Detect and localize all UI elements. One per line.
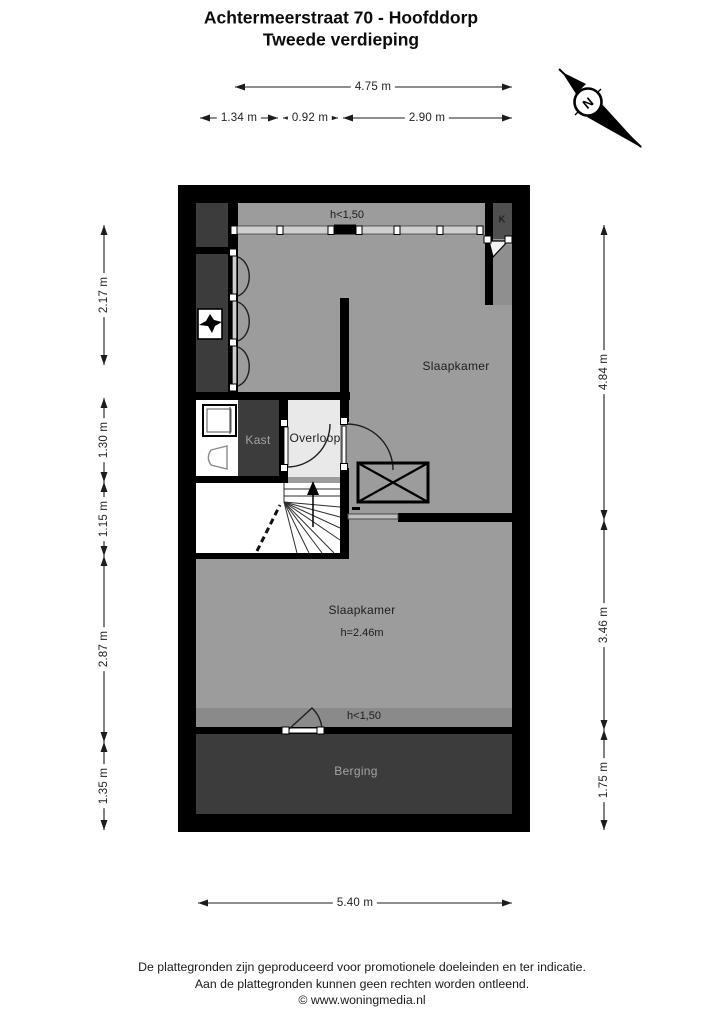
dim-right-2: 3.46 m	[598, 603, 610, 647]
dim-right-1: 4.84 m	[598, 350, 610, 394]
height-note-bottom: h<1,50	[347, 710, 381, 722]
mv-unit-icon	[198, 309, 222, 339]
dim-left-2: 1.30 m	[98, 418, 110, 462]
dim-left-4: 2.87 m	[98, 627, 110, 671]
floorplan-page: N Achtermeerstraat 70 - Hoofddorp Tweede…	[0, 0, 724, 1024]
dim-top-seg-2: 0.92 m	[288, 112, 332, 124]
window-band-top	[231, 225, 483, 235]
dim-left-1: 2.17 m	[98, 273, 110, 317]
footer-disclaimer-2: Aan de plattegronden kunnen geen rechten…	[195, 977, 529, 991]
height-note-top: h<1,50	[330, 209, 364, 221]
room-label-slaapkamer-bottom: Slaapkamer	[328, 603, 395, 617]
compass-rose: N	[559, 69, 642, 148]
footer-disclaimer-1: De plattegronden zijn geproduceerd voor …	[138, 960, 586, 974]
page-title: Achtermeerstraat 70 - Hoofddorp	[204, 8, 478, 29]
dim-left-3: 1.15 m	[98, 497, 110, 541]
sink-icon	[208, 446, 227, 469]
room-label-overloop: Overloop	[289, 431, 340, 445]
dim-top-seg-3: 2.90 m	[405, 112, 449, 124]
room-label-berging: Berging	[334, 764, 377, 778]
height-note-slaapkamer-bottom: h=2.46m	[340, 627, 383, 639]
dim-bottom-total: 5.40 m	[333, 897, 377, 909]
room-label-k: K	[499, 215, 506, 226]
dim-top-total: 4.75 m	[351, 81, 395, 93]
attic-zone-topleft	[196, 203, 228, 247]
chimney-segment	[334, 225, 356, 235]
page-subtitle: Tweede verdieping	[263, 30, 419, 51]
washing-machine-icon	[203, 405, 236, 436]
dim-left-5: 1.35 m	[98, 764, 110, 808]
dim-top-seg-1: 1.34 m	[217, 112, 261, 124]
footer-copyright: © www.woningmedia.nl	[298, 993, 425, 1007]
room-label-slaapkamer-top: Slaapkamer	[422, 359, 489, 373]
stair-room	[196, 483, 348, 553]
room-label-kast: Kast	[245, 433, 270, 447]
dim-right-3: 1.75 m	[598, 758, 610, 802]
